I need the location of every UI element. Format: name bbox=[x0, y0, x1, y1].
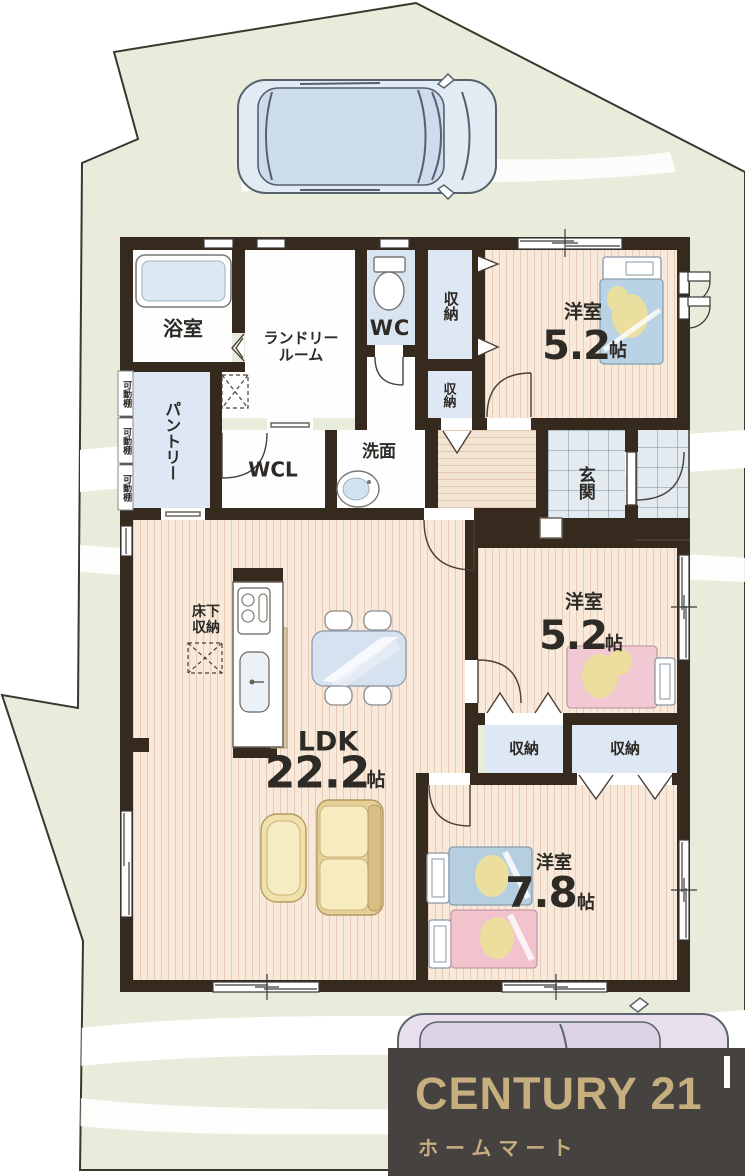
label-underfloor-storage: 床下 収納 bbox=[192, 604, 220, 636]
entrance-step bbox=[540, 518, 562, 538]
label-laundry-line1: ランドリー bbox=[263, 330, 338, 347]
armchair bbox=[261, 814, 306, 902]
dining-set bbox=[312, 611, 406, 705]
bedroom1-door bbox=[487, 373, 531, 417]
label-pantry: パントリー bbox=[162, 401, 180, 481]
logo-brand-text: CENTURY 21 bbox=[415, 1068, 703, 1120]
sliding-track bbox=[166, 512, 200, 516]
label-laundry: ランドリー ルーム bbox=[263, 330, 338, 365]
label-storage-2: 収納 bbox=[440, 382, 455, 408]
sliding-track bbox=[271, 423, 309, 427]
label-wc: WC bbox=[370, 316, 411, 340]
label-bedroom1: 洋室 bbox=[564, 302, 602, 324]
label-movable-shelf-1: 可動棚 bbox=[121, 381, 131, 408]
label-ldk-unit: 帖 bbox=[366, 770, 385, 792]
floorplan-image: 浴室 ランドリー ルーム WC 収納 収納 洋室 5.2 帖 玄関 洗面 WCL… bbox=[0, 0, 745, 1176]
label-movable-shelf-2: 可動棚 bbox=[121, 428, 131, 455]
kitchen-counter bbox=[233, 582, 287, 748]
logo-artifact bbox=[724, 1056, 730, 1088]
logo-store-text: ホームマート bbox=[418, 1132, 579, 1161]
label-wcl: WCL bbox=[248, 459, 297, 482]
closet2-folding-door bbox=[443, 431, 471, 453]
century21-logo: CENTURY 21 ホームマート bbox=[388, 1048, 745, 1176]
bath-folding-door bbox=[232, 334, 244, 361]
label-ldk-size: 22.2 bbox=[265, 749, 370, 800]
label-laundry-line2: ルーム bbox=[263, 347, 338, 364]
label-bedroom1-unit: 帖 bbox=[609, 342, 627, 363]
label-bath: 浴室 bbox=[163, 318, 203, 341]
label-washroom: 洗面 bbox=[362, 443, 396, 463]
washbasin bbox=[337, 471, 379, 507]
front-door bbox=[627, 452, 684, 505]
toilet bbox=[374, 257, 405, 310]
detail-layer bbox=[0, 0, 745, 1176]
label-bedroom2: 洋室 bbox=[565, 592, 603, 614]
label-storage-3: 収納 bbox=[509, 740, 539, 757]
bedroom3-door bbox=[429, 785, 470, 826]
bathtub bbox=[136, 255, 231, 307]
label-bedroom1-size: 5.2 bbox=[542, 323, 610, 369]
label-bedroom3-size: 7.8 bbox=[505, 869, 576, 917]
closet1-folding-door bbox=[478, 256, 498, 356]
label-movable-shelf-3: 可動棚 bbox=[121, 475, 131, 502]
wc-door bbox=[375, 357, 403, 385]
label-entrance: 玄関 bbox=[574, 466, 594, 500]
label-underfloor-line2: 収納 bbox=[192, 620, 220, 636]
label-bedroom3-unit: 帖 bbox=[577, 894, 595, 915]
ldk-door bbox=[424, 520, 474, 570]
label-storage-1: 収納 bbox=[441, 291, 458, 321]
closet3-folding-door bbox=[487, 693, 561, 713]
label-bedroom2-unit: 帖 bbox=[605, 635, 623, 656]
sofa bbox=[317, 800, 383, 915]
label-underfloor-line1: 床下 bbox=[192, 604, 220, 620]
label-storage-4: 収納 bbox=[610, 740, 640, 757]
label-bedroom2-size: 5.2 bbox=[539, 613, 607, 659]
